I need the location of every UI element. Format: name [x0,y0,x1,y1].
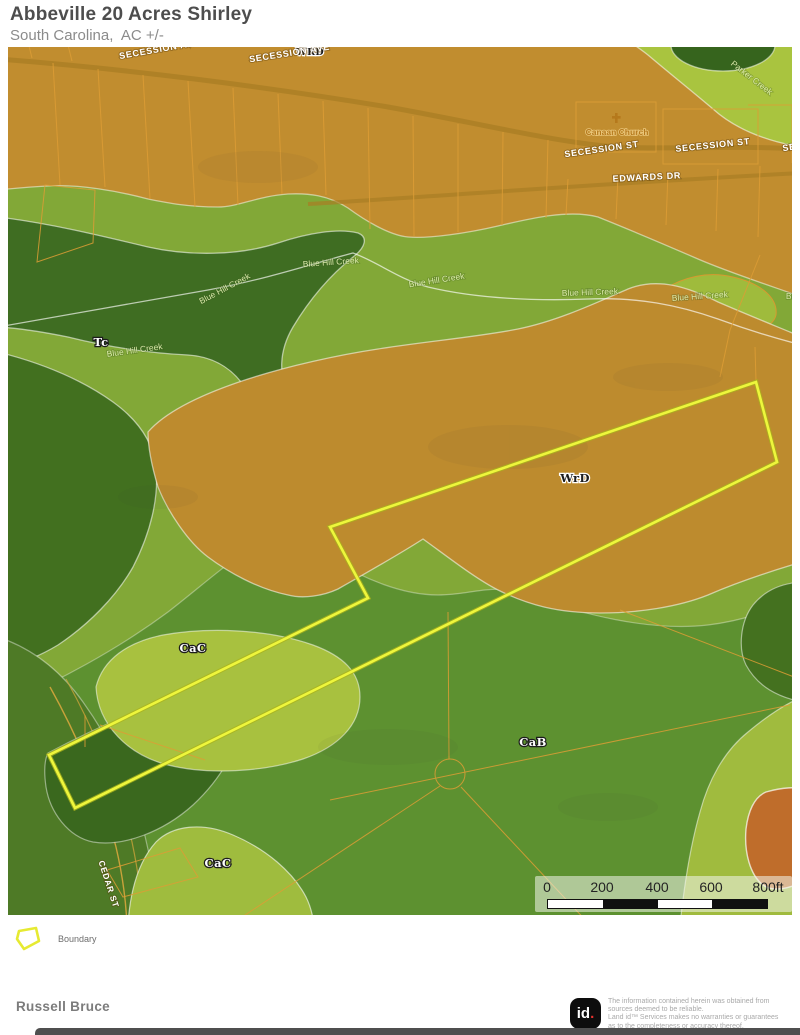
map-label: Blue Hill Creek [562,286,619,298]
scale-tick-label: 0 [543,879,551,895]
author-name: Russell Bruce [16,999,110,1014]
disclaimer-text: The information contained herein was obt… [608,998,794,1031]
map-header: Abbeville 20 Acres Shirley South Carolin… [10,4,252,44]
land-id-logo: id. [570,998,601,1029]
map-label: Blue Hill Creek [786,291,792,301]
scale-bar-segments [547,899,768,909]
boundary-legend-icon [14,926,42,952]
scale-tick-label: 800ft [752,879,783,895]
map-label: Canaan Church [586,127,649,137]
scale-segment [658,900,713,908]
scale-segment [603,900,658,908]
scale-segment [712,900,767,908]
map-canvas[interactable]: WRDSECESSION AVESECESSION AVESECESSION S… [8,47,792,915]
bottom-bar [35,1028,800,1035]
map-label: CaB [519,735,547,749]
logo-dot: . [590,1005,594,1022]
map-label: Tc [93,335,108,349]
legend: Boundary [8,918,97,960]
page-title: Abbeville 20 Acres Shirley [10,4,252,26]
scale-bar: 0200400600800ft [535,876,792,912]
scale-tick-label: 200 [590,879,613,895]
scale-tick-label: 600 [699,879,722,895]
map-image: WRDSECESSION AVESECESSION AVESECESSION S… [8,47,792,915]
map-label: CaC [180,641,207,655]
page-subtitle: South Carolina, AC +/- [10,27,252,44]
page: Abbeville 20 Acres Shirley South Carolin… [0,0,800,1035]
scale-segment [548,900,603,908]
map-label: WrD [559,471,590,485]
map-label: CaC [205,856,232,870]
scale-tick-label: 400 [645,879,668,895]
logo-text: id [577,1005,590,1022]
legend-item-boundary[interactable]: Boundary [58,934,97,944]
